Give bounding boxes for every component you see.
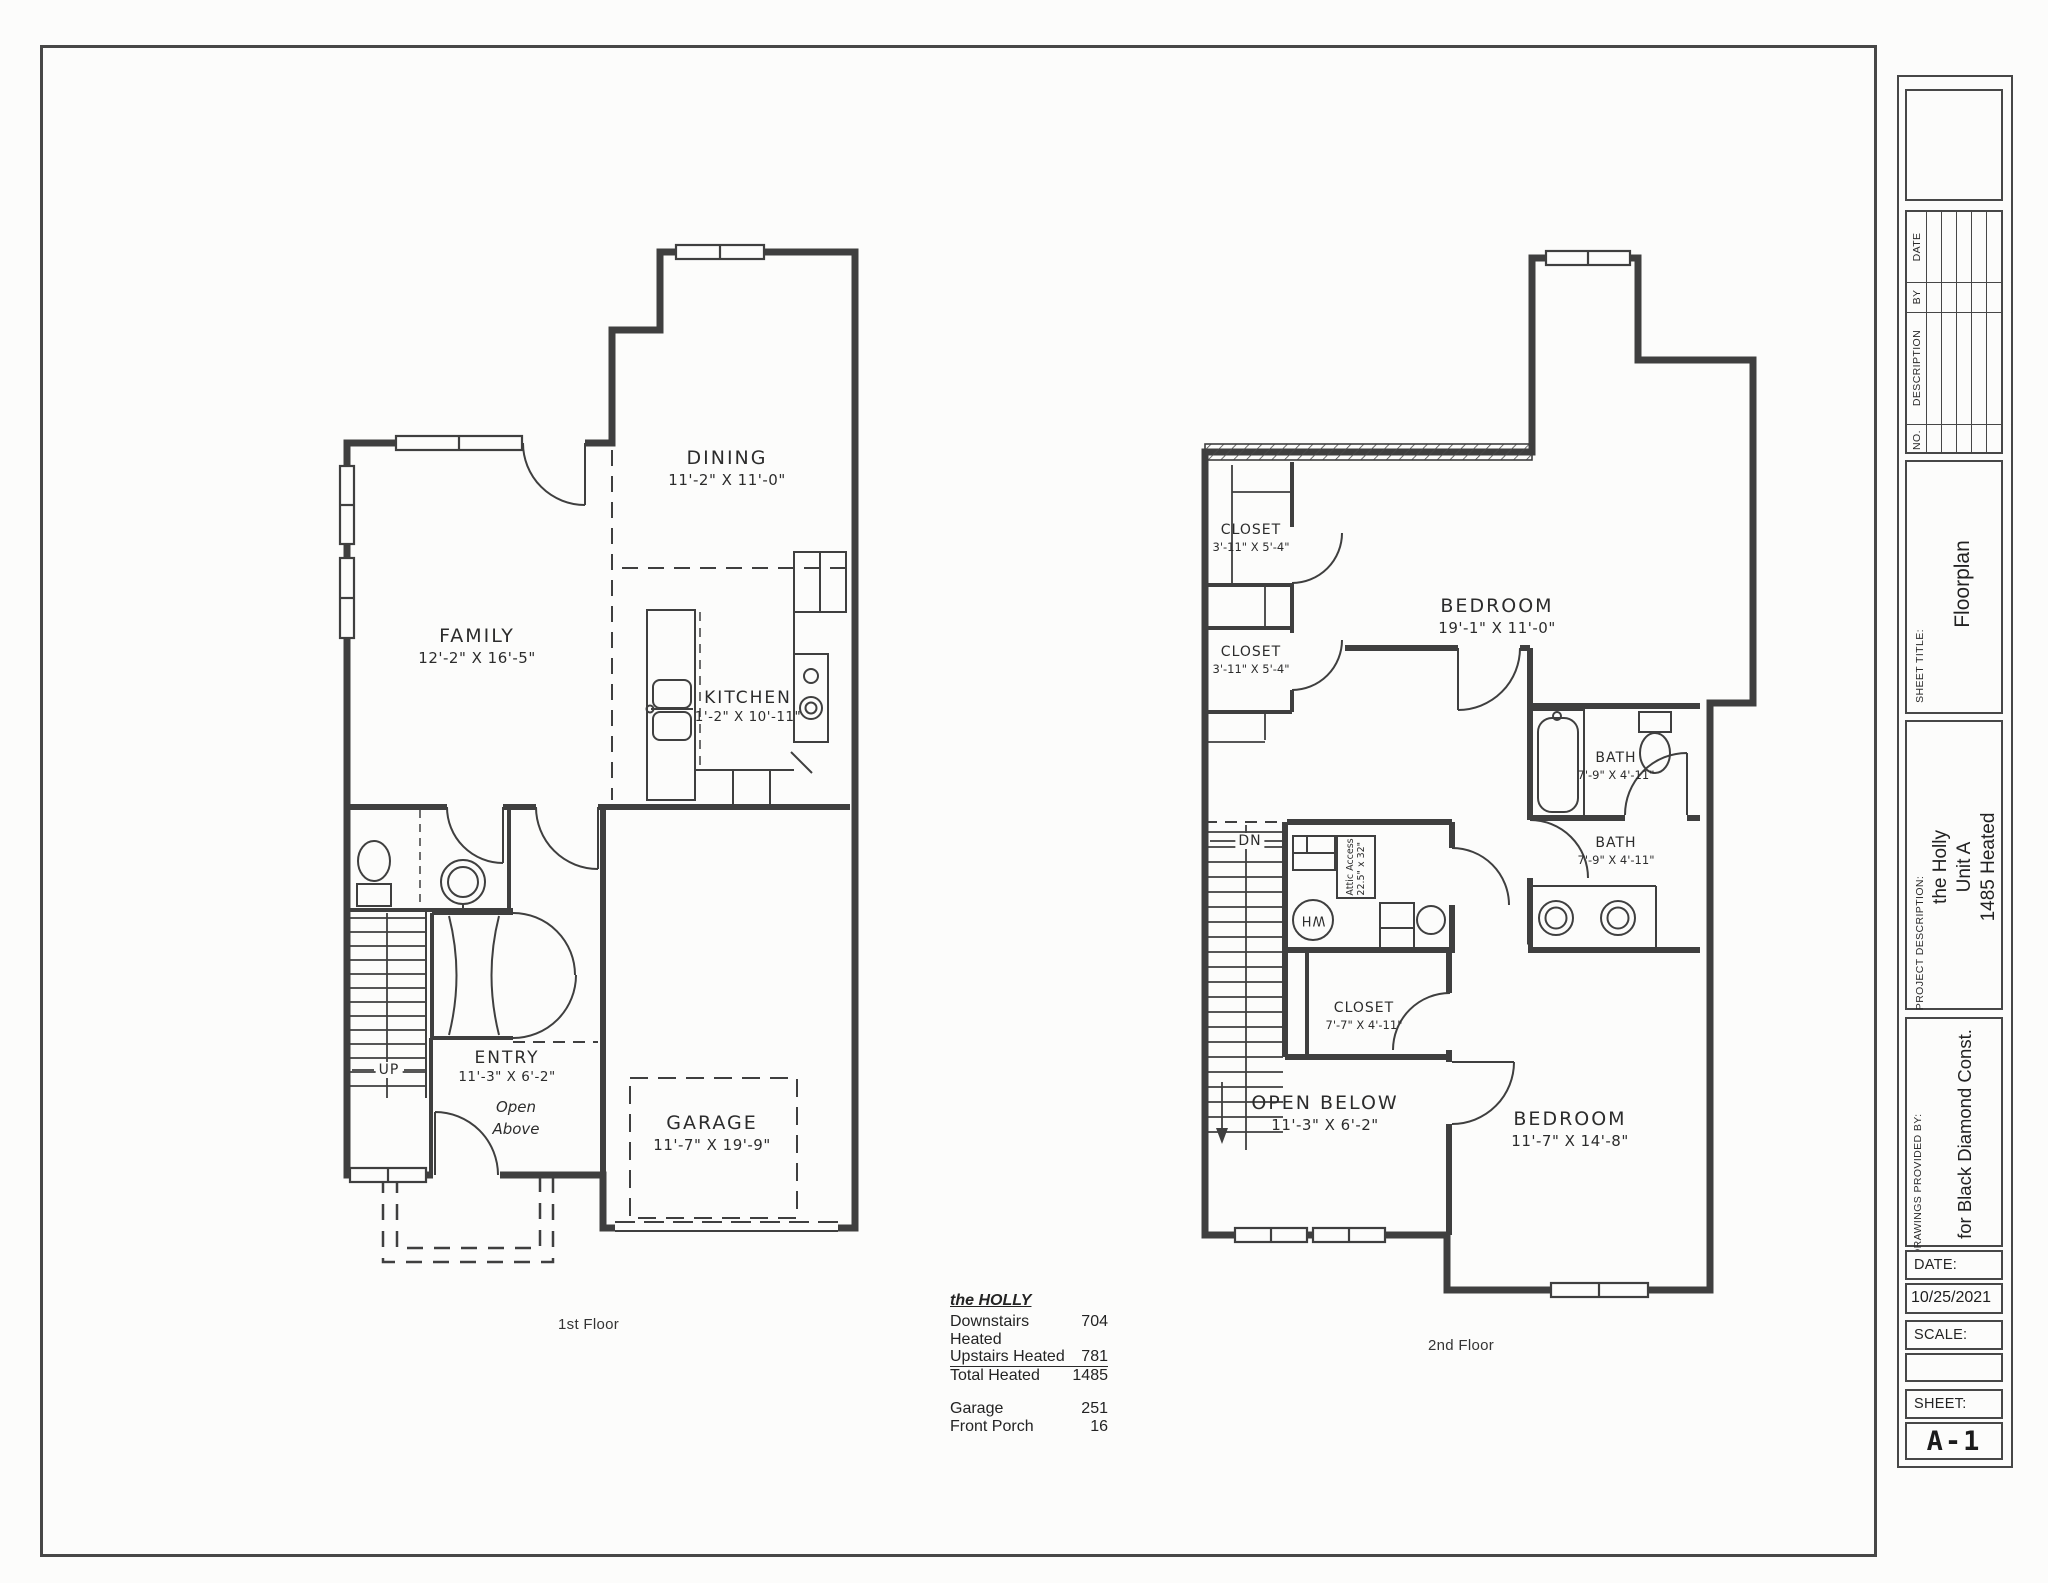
room-label-family: FAMILY 12'-2" X 16'-5" (418, 625, 535, 668)
second-floor-plan (1205, 251, 1753, 1297)
revision-header-no: NO. (1911, 430, 1923, 450)
revision-header-date: DATE (1911, 233, 1923, 262)
summary-row: Upstairs Heated 781 (950, 1348, 1108, 1367)
scale-label-box: SCALE: (1905, 1320, 2003, 1350)
room-label-dining: DINING 11'-2" X 11'-0" (668, 447, 785, 490)
drawings-provided-box: DRAWINGS PROVIDED BY: for Black Diamond … (1905, 1017, 2003, 1247)
title-block-stamp-box (1905, 89, 2003, 201)
sink-icon (441, 860, 485, 912)
drawings-provided-value: for Black Diamond Const. (1954, 1029, 1976, 1239)
utility-appliances (1293, 836, 1445, 950)
up-label: UP (376, 1062, 403, 1078)
sheet-label-box: SHEET: (1905, 1389, 2003, 1419)
room-label-closet-c: CLOSET 7'-7" X 4'-11" (1326, 1000, 1403, 1032)
open-above-note: Open Above (492, 1096, 539, 1140)
room-label-bedroom-b: BEDROOM 11'-7" X 14'-8" (1511, 1108, 1628, 1151)
sheet-number: A-1 (1907, 1424, 2001, 1457)
room-label-bedroom-main: BEDROOM 19'-1" X 11'-0" (1438, 595, 1555, 638)
project-description-label: PROJECT DESCRIPTION: (1914, 876, 1926, 1010)
room-label-bath-b: BATH 7'-9" X 4'-11" (1578, 835, 1655, 867)
sheet-title-label: SHEET TITLE: (1914, 629, 1926, 703)
vanity-sinks (1530, 886, 1656, 948)
date-label-box: DATE: (1905, 1250, 2003, 1280)
sheet-number-box: A-1 (1905, 1422, 2003, 1460)
room-label-closet-a: CLOSET 3'-11" X 5'-4" (1213, 522, 1290, 554)
drawings-provided-label: DRAWINGS PROVIDED BY: (1912, 1114, 1924, 1257)
room-label-bath-a: BATH 7'-9" X 4'-11" (1578, 750, 1655, 782)
drawing-sheet: FAMILY 12'-2" X 16'-5" DINING 11'-2" X 1… (0, 0, 2048, 1583)
summary-row: Garage 251 (950, 1400, 1108, 1418)
bathtub-icon (1532, 710, 1584, 818)
revision-header-by: BY (1911, 290, 1923, 305)
plan-title: the HOLLY (950, 1292, 1108, 1310)
room-label-open-below: OPEN BELOW 11'-3" X 6'-2" (1251, 1092, 1398, 1135)
kitchen-counter (647, 552, 847, 805)
toilet-icon (357, 841, 391, 906)
sheet-title-box: SHEET TITLE: Floorplan (1905, 460, 2003, 714)
revision-table: DATE BY DESCRIPTION NO. (1905, 210, 2003, 454)
revision-header-description: DESCRIPTION (1911, 330, 1923, 406)
scale-value-box (1905, 1353, 2003, 1382)
attic-access-note: Attic Access 22.5" x 32" (1345, 835, 1367, 898)
room-dims: 12'-2" X 16'-5" (418, 649, 535, 668)
stair-arrow (1216, 1128, 1228, 1144)
summary-row: Downstairs Heated 704 (950, 1313, 1108, 1348)
title-block: DATE BY DESCRIPTION NO. SHEET TITLE: Flo… (1897, 75, 2013, 1468)
water-heater-label: WH (1298, 913, 1329, 928)
caption-second-floor: 2nd Floor (1428, 1337, 1494, 1354)
summary-row: Front Porch 16 (950, 1418, 1108, 1436)
room-label-garage: GARAGE 11'-7" X 19'-9" (653, 1112, 770, 1155)
area-summary: the HOLLY Downstairs Heated 704 Upstairs… (950, 1292, 1108, 1435)
room-name: FAMILY (418, 625, 535, 649)
sheet-title-value: Floorplan (1951, 540, 1975, 628)
first-floor-plan (340, 245, 855, 1262)
room-label-closet-b: CLOSET 3'-11" X 5'-4" (1213, 644, 1290, 676)
date-value-box: 10/25/2021 (1905, 1283, 2003, 1314)
summary-row: Total Heated 1485 (950, 1367, 1108, 1385)
dn-label: DN (1235, 833, 1264, 849)
room-label-kitchen: KITCHEN 1'-2" X 10'-11" (695, 688, 801, 726)
project-description-value: the Holly Unit A 1485 Heated (1929, 813, 2001, 922)
hatched-wall (1205, 444, 1532, 460)
project-description-box: PROJECT DESCRIPTION: the Holly Unit A 14… (1905, 720, 2003, 1010)
caption-first-floor: 1st Floor (558, 1316, 619, 1333)
room-label-entry: ENTRY 11'-3" X 6'-2" (458, 1048, 555, 1086)
